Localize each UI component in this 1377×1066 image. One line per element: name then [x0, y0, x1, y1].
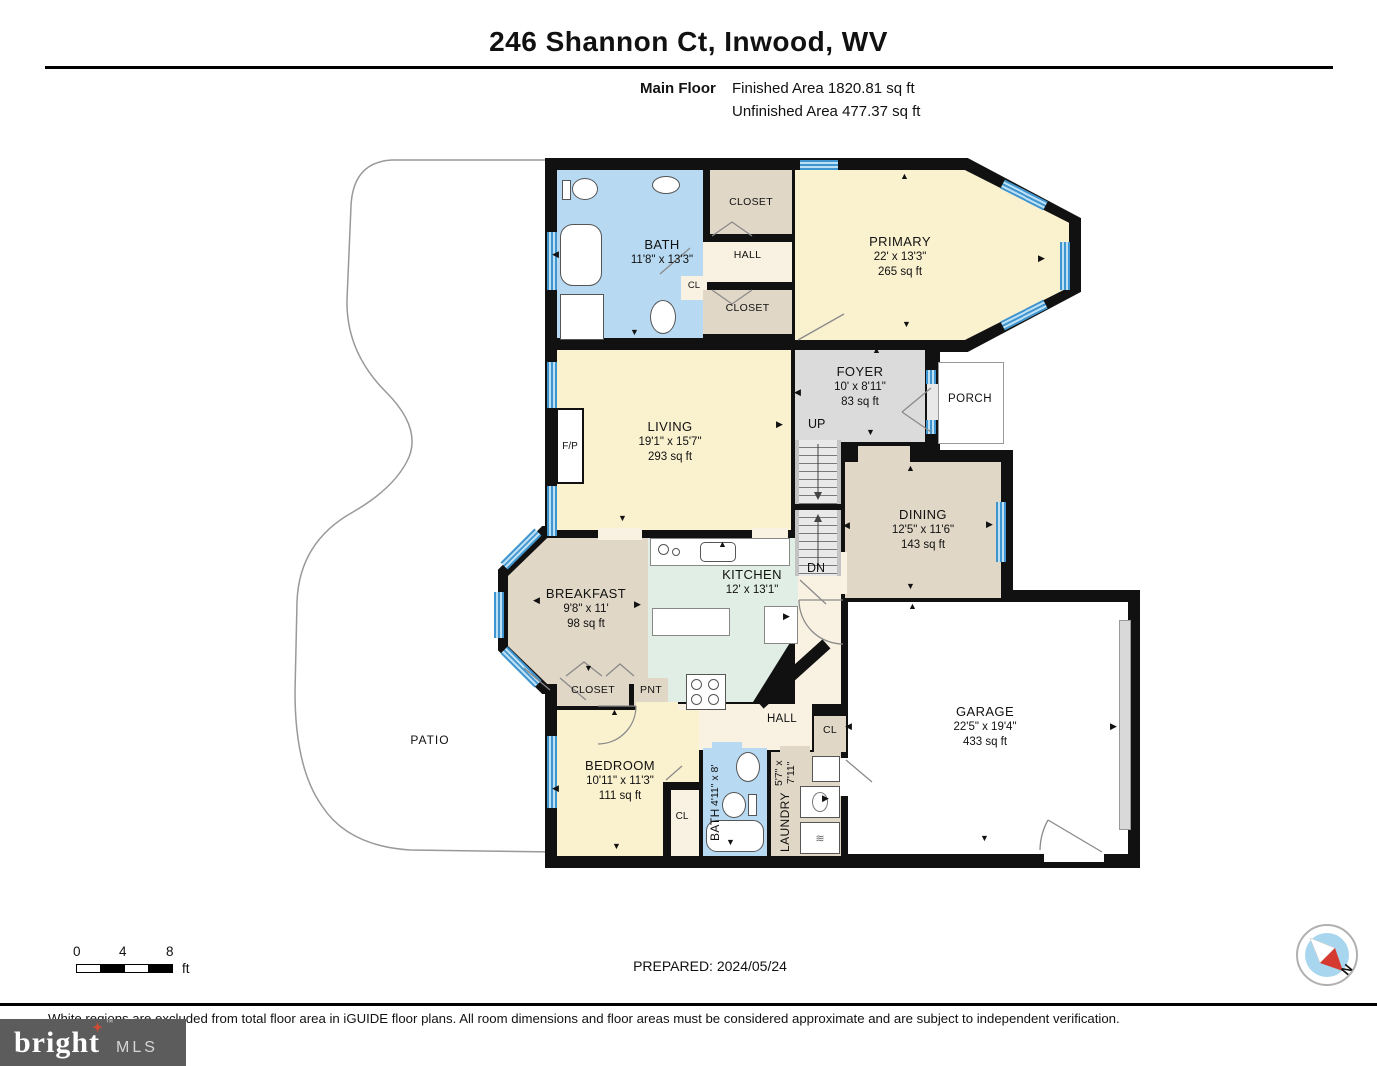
room-label-hall-bottom: HALL	[742, 712, 822, 727]
room-area: 83 sq ft	[841, 395, 879, 410]
dimension-arrow: ▲	[620, 342, 629, 351]
room-dims: 12'5" x 11'6"	[892, 523, 954, 538]
window	[494, 592, 504, 638]
room-area: 98 sq ft	[567, 617, 605, 632]
laundry-sink	[812, 756, 840, 782]
door-opening	[712, 742, 742, 750]
room-label-closet-bottom: CLOSET	[557, 684, 629, 698]
dimension-arrow: ◀	[845, 722, 852, 731]
dryer: ≋	[800, 822, 840, 854]
sink	[652, 176, 680, 194]
dimension-arrow: ◀	[552, 250, 559, 259]
room-name: KITCHEN	[722, 566, 782, 583]
dimension-arrow: ◀	[552, 784, 559, 793]
dimension-arrow: ▼	[630, 328, 639, 337]
room-dims: 9'8" x 11'	[563, 602, 608, 617]
room-label-patio: PATIO	[390, 733, 470, 749]
room-label-primary: PRIMARY 22' x 13'3" 265 sq ft	[830, 233, 970, 281]
door-opening	[1044, 846, 1104, 862]
fireplace-label: F/P	[562, 441, 578, 452]
window	[547, 362, 557, 408]
dimension-arrow: ▲	[718, 540, 727, 549]
dimension-arrow: ▶	[634, 600, 641, 609]
dimension-arrow: ▶	[783, 612, 790, 621]
room-dims: 10' x 8'11"	[834, 380, 886, 395]
room-label-porch: PORCH	[935, 392, 1005, 407]
room-name: FOYER	[837, 363, 884, 380]
sink	[736, 752, 760, 782]
dimension-arrow: ▶	[1038, 254, 1045, 263]
toilet	[572, 178, 598, 200]
room-label-cl-hall: CL	[814, 724, 846, 738]
dryer-icon: ≋	[815, 832, 824, 845]
cooktop-burner	[672, 548, 680, 556]
dimension-arrow: ◀	[794, 388, 801, 397]
logo-brand-text: bright	[14, 1026, 100, 1059]
kitchen-counter	[764, 606, 798, 644]
kitchen-island	[652, 608, 730, 636]
dimension-arrow: ▲	[900, 172, 909, 181]
room-area: 265 sq ft	[878, 265, 922, 280]
room-label-garage: GARAGE 22'5" x 19'4" 433 sq ft	[900, 703, 1070, 751]
room-dims: 22' x 13'3"	[874, 250, 927, 265]
room-label-cl-bedroom: CL	[666, 810, 698, 823]
dimension-arrow: ▼	[584, 664, 593, 673]
cooktop-burner	[658, 544, 669, 555]
room-label-breakfast: BREAKFAST 9'8" x 11' 98 sq ft	[526, 585, 646, 633]
room-dims: 12' x 13'1"	[726, 583, 779, 598]
room-label-bedroom: BEDROOM 10'11" x 11'3" 111 sq ft	[540, 757, 700, 805]
room-name: BEDROOM	[585, 757, 655, 774]
room-dims: 11'8" x 13'3"	[631, 253, 693, 268]
room-area: 111 sq ft	[599, 789, 641, 804]
shower	[560, 294, 604, 340]
room-dims: 5'7" x 7'11"	[773, 756, 797, 790]
room-name: PATIO	[410, 733, 449, 749]
room-name: HALL	[767, 712, 797, 727]
door-opening	[780, 746, 810, 754]
dimension-arrow: ▲	[908, 602, 917, 611]
toilet	[748, 794, 757, 816]
dimension-arrow: ▼	[906, 582, 915, 591]
room-label-pantry: PNT	[634, 684, 668, 698]
room-name: DINING	[899, 506, 947, 523]
dimension-arrow: ◀	[533, 596, 540, 605]
room-area: 143 sq ft	[901, 538, 945, 553]
room-name: CL	[688, 280, 700, 293]
room-area: 293 sq ft	[648, 450, 692, 465]
room-dims: 4'11" x 8'	[709, 765, 721, 806]
stairs-up	[795, 440, 841, 504]
stove-burner	[691, 694, 702, 705]
room-name: BATH	[708, 808, 722, 841]
room-label-laundry: LAUNDRY 5'7" x 7'11"	[766, 756, 804, 852]
fireplace: F/P	[556, 408, 584, 484]
room-label-closet-mid: CLOSET	[703, 302, 792, 316]
dimension-arrow: ▶	[822, 794, 829, 803]
room-dims: 10'11" x 11'3"	[586, 774, 654, 789]
room-area: 433 sq ft	[963, 735, 1007, 750]
dimension-arrow: ▲	[872, 346, 881, 355]
room-name: GARAGE	[956, 703, 1014, 720]
toilet	[562, 180, 571, 200]
logo-star-icon: ✦	[92, 1020, 104, 1036]
logo-suffix: MLS	[116, 1039, 158, 1057]
room-name: PRIMARY	[869, 233, 931, 250]
room-label-living: LIVING 19'1" x 15'7" 293 sq ft	[590, 418, 750, 466]
window	[547, 486, 557, 536]
dimension-arrow: ▼	[726, 838, 735, 847]
brightmls-logo: bright ✦ ™ MLS	[0, 1019, 186, 1066]
stairs-up-label: UP	[808, 417, 825, 431]
room-label-dining: DINING 12'5" x 11'6" 143 sq ft	[845, 506, 1001, 554]
room-label-closet-top: CLOSET	[710, 196, 792, 210]
stove-burner	[708, 679, 719, 690]
room-dims: 22'5" x 19'4"	[953, 720, 1016, 735]
room-name: CL	[823, 724, 837, 738]
floorplan-page: 246 Shannon Ct, Inwood, WV Main Floor Fi…	[0, 0, 1377, 1066]
room-label-kitchen: KITCHEN 12' x 13'1"	[692, 566, 812, 598]
room-name: CLOSET	[729, 196, 773, 210]
room-label-hall-top: HALL	[703, 249, 792, 263]
garage-door	[1119, 620, 1131, 830]
stove-burner	[708, 694, 719, 705]
room-name: LIVING	[647, 418, 692, 435]
room-name: CL	[676, 810, 689, 823]
dimension-arrow: ▲	[906, 464, 915, 473]
room-name: PORCH	[948, 392, 992, 407]
room-name: BREAKFAST	[546, 585, 626, 602]
door-opening	[598, 528, 642, 540]
dimension-arrow: ▼	[612, 842, 621, 851]
room-name: PNT	[640, 684, 662, 698]
window	[800, 160, 838, 170]
dimension-arrow: ▼	[902, 320, 911, 329]
stove-burner	[691, 679, 702, 690]
room-label-foyer: FOYER 10' x 8'11" 83 sq ft	[800, 363, 920, 411]
door-opening	[636, 702, 678, 712]
door-opening	[858, 446, 910, 464]
room-name: CLOSET	[726, 302, 770, 316]
room-name: HALL	[734, 249, 761, 263]
stairs-down-label: DN	[807, 561, 825, 575]
dimension-arrow: ▼	[980, 834, 989, 843]
window	[926, 370, 936, 384]
bathtub	[560, 224, 602, 286]
dimension-arrow: ▼	[866, 428, 875, 437]
room-name: BATH	[644, 236, 679, 253]
window	[547, 232, 557, 290]
dimension-arrow: ▶	[776, 420, 783, 429]
logo-brand: bright ✦ ™	[14, 1026, 100, 1060]
room-name: LAUNDRY	[778, 792, 792, 852]
sink	[650, 300, 676, 334]
window	[926, 420, 936, 434]
window	[1060, 242, 1070, 290]
logo-tm: ™	[106, 1018, 114, 1026]
room-dims: 19'1" x 15'7"	[638, 435, 701, 450]
dimension-arrow: ◀	[843, 521, 850, 530]
door-opening	[840, 758, 848, 796]
compass	[1294, 922, 1360, 988]
dimension-arrow: ▲	[610, 708, 619, 717]
room-label-cl-top: CL	[679, 280, 709, 293]
dimension-arrow: ▼	[618, 514, 627, 523]
dimension-arrow: ▶	[1110, 722, 1117, 731]
dimension-arrow: ▶	[986, 520, 993, 529]
room-name: CLOSET	[571, 684, 615, 698]
